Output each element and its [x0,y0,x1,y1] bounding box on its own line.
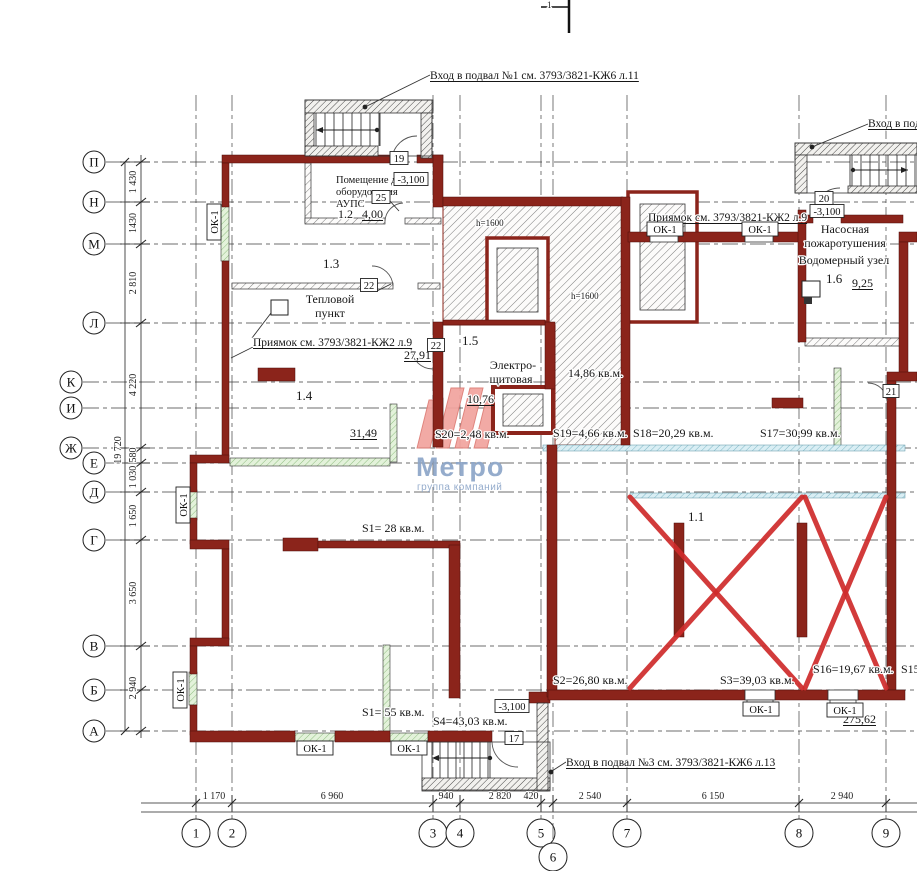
grid-col-label: 8 [796,826,803,841]
plan-text: Тепловой [306,292,355,306]
plan-text: h=1600 [476,218,504,228]
tag-ОК-1: ОК-1 [827,703,863,717]
section-mark [541,0,569,33]
heat-unit-equipment [271,300,288,315]
svg-text:ОК-1: ОК-1 [303,744,326,755]
grid-row-label: П [89,155,98,170]
plan-text: пожаротушения [804,236,886,250]
plan-text: S1= 55 кв.м. [362,705,425,719]
dim-left: 580 [128,448,139,463]
dim-left: 1 030 [128,466,139,489]
plan-text: 31,49 [350,426,377,440]
logo-brand-text: Метро [416,452,504,482]
dim-bottom: 1 170 [203,791,226,802]
plan-text: 4,00 [362,207,383,221]
svg-text:-3,100: -3,100 [813,207,840,218]
plan-text: S19=4,66 кв.м. [553,426,628,440]
svg-text:ОК-1: ОК-1 [179,493,190,516]
svg-text:22: 22 [364,281,375,292]
tag-ОК-1: ОК-1 [742,222,778,236]
plan-text: пункт [315,306,346,320]
dim-left: 1 430 [128,171,139,194]
plan-text: 1.1 [688,509,704,524]
grid-row-label: Д [90,485,99,500]
plan-text: Водомерный узел [799,253,889,267]
svg-text:20: 20 [819,194,830,205]
shaft-box-1 [487,238,548,322]
tag--3,100: -3,100 [394,173,428,186]
dim-left: 2 940 [128,677,139,700]
grid-row-label: А [89,724,99,739]
dim-bottom: 2 540 [579,791,602,802]
plan-text: S1= 28 кв.м. [362,521,425,535]
grid-col-label: 6 [550,850,557,865]
floor-plan-canvas: ПНМЛКИЖЕДГВБА123456789 Метро группа комп… [0,0,917,871]
plan-text: Вход в подвал №3 см. 3793/3821-КЖ6 л.13 [566,757,776,769]
svg-text:ОК-1: ОК-1 [653,225,676,236]
dim-left: 3 650 [128,582,139,605]
grid-col-label: 1 [193,826,200,841]
grid-row-label: Е [90,456,98,471]
tag-ОК-1: ОК-1 [743,702,779,716]
svg-text:-3,100: -3,100 [397,175,424,186]
plan-text: Электро- [490,358,536,372]
grid-col-label: 2 [229,826,236,841]
grid-col-label: 7 [624,826,631,841]
grid-row-label: Ж [65,441,77,456]
dim-bottom: 6 150 [702,791,725,802]
tag-22: 22 [428,339,445,352]
grid-row-label: В [90,639,99,654]
grid-row-label: М [88,237,100,252]
svg-text:21: 21 [886,387,897,398]
plan-text: Насосная [821,222,870,236]
tag-17: 17 [505,732,523,745]
svg-text:-3,100: -3,100 [498,702,525,713]
dim-left: 4 220 [128,374,139,397]
svg-text:ОК-1: ОК-1 [397,744,420,755]
dim-left: 1430 [128,213,139,233]
tag-20: 20 [815,192,833,205]
tag-25: 25 [372,191,390,204]
svg-text:19: 19 [394,154,405,165]
tag-22: 22 [361,279,378,292]
plan-text: S17=30,99 кв.м. [760,426,841,440]
svg-text:ОК-1: ОК-1 [749,705,772,716]
svg-text:ОК-1: ОК-1 [748,225,771,236]
svg-text:ОК-1: ОК-1 [176,678,187,701]
grid-col-label: 3 [430,826,437,841]
tag-ОК-1: ОК-1 [647,222,683,236]
plan-text: 1.2 [338,207,353,221]
plan-text: S15 [901,662,917,676]
plan-text: 1.4 [296,388,313,403]
plan-text: 1.5 [462,333,478,348]
plan-text: S20=2,48 кв.м. [435,427,510,441]
plan-text: S16=19,67 кв.м. [813,662,894,676]
tag-19: 19 [390,152,408,165]
plan-text: S18=20,29 кв.м. [633,426,714,440]
demolition-cross-marks [630,497,886,688]
grid-row-label: И [66,401,75,416]
plan-text: Приямок см. 3793/3821-КЖ2 л.9 [253,337,412,349]
plan-text: S3=39,03 кв.м. [720,673,795,687]
plan-text: S4=43,03 кв.м. [433,714,508,728]
svg-text:22: 22 [431,341,442,352]
grid-col-label: 5 [538,826,545,841]
grid-row-label: Г [90,533,98,548]
plan-text: 9,25 [852,276,873,290]
tag-ОК-1: ОК-1 [391,741,427,755]
plan-text: Вход в подвал №1 см. 3793/3821-КЖ6 л.11 [430,70,639,82]
grid-row-label: Н [89,195,98,210]
tag-ОК-1: ОК-1 [173,672,187,708]
plan-text: щитовая [489,372,533,386]
grid-row-label: К [67,375,76,390]
plan-text: 1 [547,0,552,10]
dim-bottom: 2 820 [489,791,512,802]
grid-col-label: 4 [457,826,464,841]
cyan-partitions [543,445,905,498]
dim-bottom: 2 940 [831,791,854,802]
dim-left: 1 650 [128,505,139,528]
tag--3,100: -3,100 [810,205,844,218]
tag-ОК-1: ОК-1 [176,487,190,523]
tag-21: 21 [883,385,899,398]
tag--3,100: -3,100 [495,700,529,713]
dim-left: 2 810 [128,272,139,295]
svg-text:ОК-1: ОК-1 [833,706,856,717]
plan-text: 27,91 [404,348,431,362]
pump-equipment [802,281,820,304]
plan-text: Вход в под [868,118,917,130]
svg-text:25: 25 [376,193,387,204]
svg-text:ОК-1: ОК-1 [210,210,221,233]
dim-bottom: 940 [439,791,454,802]
logo-tagline-text: группа компаний [417,482,502,493]
plan-text: S2=26,80 кв.м. [553,673,628,687]
tag-ОК-1: ОК-1 [297,741,333,755]
plan-text: h=1600 [571,291,599,301]
dim-bottom: 420 [524,791,539,802]
plan-text: 1.3 [323,256,339,271]
dim-left-overall: 19 720 [113,436,124,464]
tag-ОК-1: ОК-1 [207,204,221,240]
plan-text: 14,86 кв.м. [568,366,623,380]
plan-text: 10,76 [467,392,494,406]
grid-col-label: 9 [883,826,890,841]
grid-row-label: Б [90,683,97,698]
dim-bottom: 6 960 [321,791,344,802]
grid-row-label: Л [90,316,99,331]
plan-text: 1.6 [826,271,843,286]
svg-text:17: 17 [509,734,520,745]
